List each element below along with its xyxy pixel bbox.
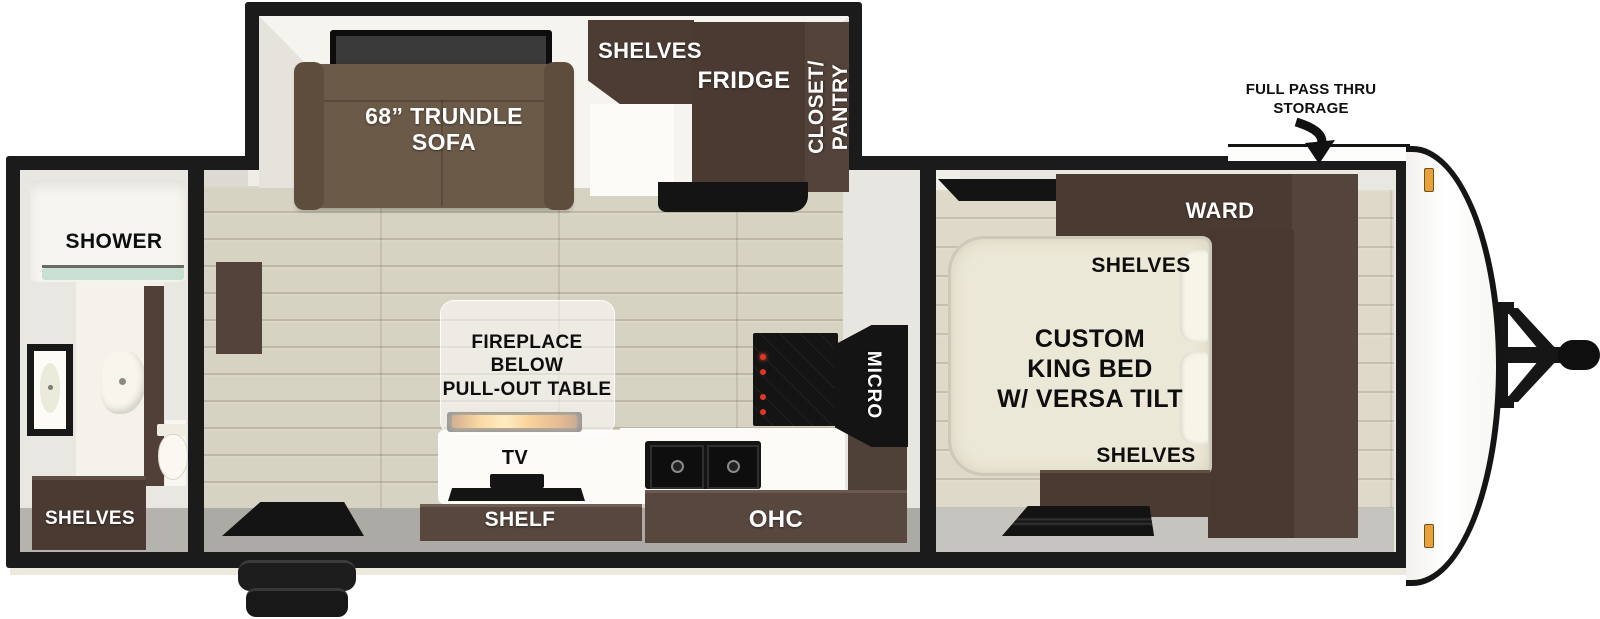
sofa-label: 68” TRUNDLE SOFA <box>344 102 544 156</box>
microwave-label: MICRO <box>861 330 885 440</box>
wardrobe-lower <box>1208 230 1294 538</box>
sink-drain-left-icon <box>671 460 684 473</box>
closet-pantry-label: CLOSET/ PANTRY <box>805 47 853 167</box>
kitchen-shelves-label: SHELVES <box>580 39 720 63</box>
kitchen-counter-dark <box>658 182 808 212</box>
pass-thru-storage-label: FULL PASS THRU STORAGE <box>1225 80 1397 120</box>
bed-shelves-upper-label: SHELVES <box>1075 254 1207 278</box>
bed-shelves-lower-label: SHELVES <box>1080 444 1212 468</box>
trailer-floorplan: SHOWER SHELVES 68” TRUNDLE SOFA SHELVES … <box>0 0 1600 619</box>
marker-light-bottom <box>1424 524 1434 548</box>
shower-label: SHOWER <box>36 229 192 255</box>
cooktop-stove <box>753 333 838 426</box>
ohc-label: OHC <box>716 507 836 533</box>
king-bed-label: CUSTOM KING BED W/ VERSA TILT <box>968 324 1212 414</box>
sofa-arm-left <box>294 62 324 210</box>
entry-step-upper <box>238 560 356 591</box>
bath-shelves-label: SHELVES <box>30 507 150 531</box>
entry-step-lower <box>246 588 348 617</box>
bath-door-panel-living-side <box>216 262 262 354</box>
hitch-coupler <box>1558 340 1600 370</box>
bedroom-window <box>938 179 1068 201</box>
sink-drain-right-icon <box>727 460 740 473</box>
ward-label: WARD <box>1160 198 1280 224</box>
bath-mirror <box>27 344 73 436</box>
kitchen-sink <box>645 441 761 489</box>
tv-screen <box>448 488 585 501</box>
sink-drain-icon <box>119 378 126 385</box>
mirror-drain-dot <box>48 385 53 390</box>
shower-curtain-glass <box>42 268 184 280</box>
bathroom-divider-wall <box>188 156 204 568</box>
fireplace-note-label: FIREPLACE BELOW PULL-OUT TABLE <box>432 330 622 402</box>
toilet <box>158 434 188 480</box>
tv-label: TV <box>485 447 545 470</box>
bedroom-floor-vent <box>1002 506 1154 536</box>
bedroom-divider-wall <box>920 156 936 568</box>
front-nose-cap <box>1406 146 1502 586</box>
tv-shelf-label: SHELF <box>450 507 590 533</box>
tv-box <box>490 474 544 488</box>
storage-arrow-icon <box>1290 118 1336 164</box>
sofa-arm-right <box>544 62 574 210</box>
wardrobe-front-panel <box>1292 174 1358 538</box>
marker-light-top <box>1424 168 1434 192</box>
burner-indicator-lights <box>760 354 766 360</box>
fridge-label: FRIDGE <box>684 68 804 93</box>
